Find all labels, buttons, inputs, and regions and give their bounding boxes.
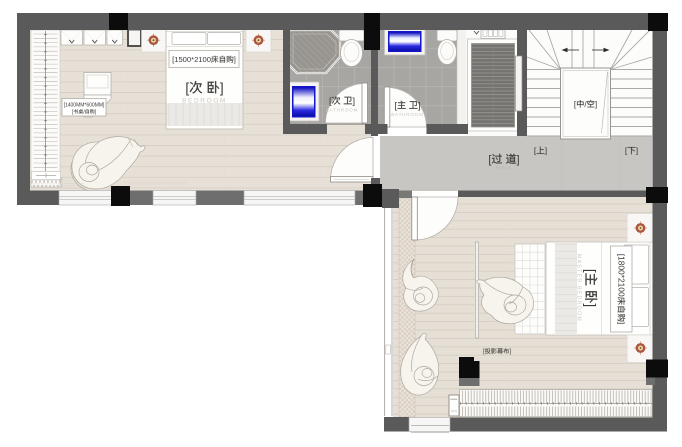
svg-text:]: ] <box>616 322 626 324</box>
svg-text:[: [ <box>329 96 332 106</box>
svg-text:]: ] <box>509 348 511 355</box>
svg-text:AISLE: AISLE <box>496 165 513 170</box>
svg-text:]: ] <box>234 55 236 64</box>
svg-text:]: ] <box>418 100 421 110</box>
svg-text:[: [ <box>394 100 397 110</box>
svg-text:[: [ <box>488 154 491 166</box>
svg-text:]: ] <box>352 96 355 106</box>
svg-text:[1400MM*600MM]: [1400MM*600MM] <box>64 103 105 109</box>
svg-text:BATHROOM: BATHROOM <box>326 108 359 113</box>
svg-text:[1800*2100: [1800*2100 <box>616 254 626 297</box>
svg-text:[1500*2100: [1500*2100 <box>172 55 211 64</box>
svg-text:[: [ <box>483 348 485 355</box>
svg-text:]: ] <box>220 80 224 95</box>
svg-text:[: [ <box>583 269 598 273</box>
svg-text:]: ] <box>545 146 547 156</box>
svg-text:BEDROOM: BEDROOM <box>182 98 227 105</box>
svg-text:]: ] <box>636 146 638 156</box>
svg-text:]: ] <box>595 100 597 109</box>
svg-text:[: [ <box>185 80 189 95</box>
svg-text:]: ] <box>583 303 598 307</box>
svg-text:BATHROOM: BATHROOM <box>391 112 424 117</box>
svg-text:]: ] <box>517 154 520 166</box>
svg-text:MASTER BEDROOM: MASTER BEDROOM <box>576 254 582 322</box>
